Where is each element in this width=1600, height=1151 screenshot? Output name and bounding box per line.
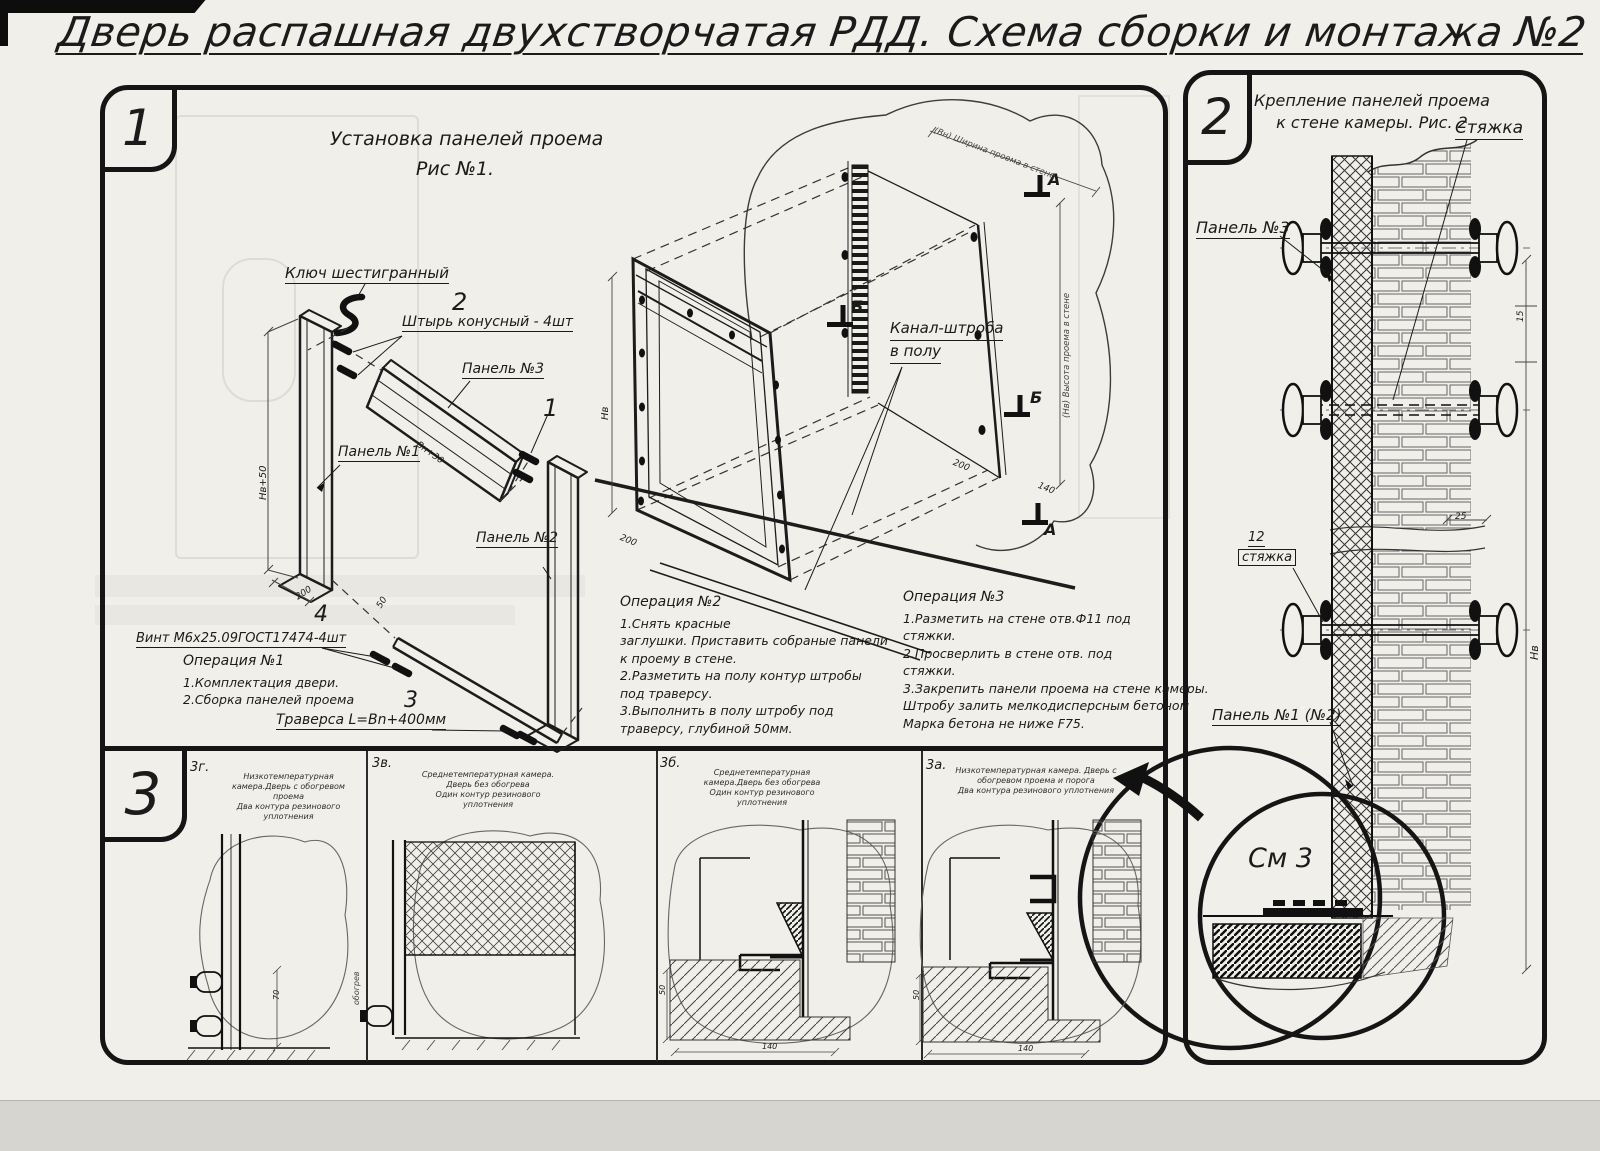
- panel12-label: Панель №1 (№2): [1212, 706, 1341, 726]
- badge-1-number: 1: [122, 99, 154, 157]
- drawing-sheet: Дверь распашная двухстворчатая РДД. Схем…: [0, 0, 1600, 1151]
- marker-letter-a: А: [1044, 520, 1056, 539]
- panel1-label: Панель №1: [338, 444, 420, 462]
- section1-heading-line2: Рис №1.: [330, 154, 580, 184]
- operation2-line: 3.Выполнить в полу штробу под: [620, 702, 888, 720]
- operation3-line: 2.Просверлить в стене отв. под: [903, 645, 1209, 663]
- cell-3v-desc: Среднетемпературная камера. Дверь без об…: [418, 770, 558, 810]
- dim-label: 25: [1455, 512, 1466, 522]
- dim-label: 50: [912, 990, 921, 1000]
- cell-desc-line: Среднетемпературная камера. Дверь без об…: [418, 770, 558, 790]
- cell-desc-line: Среднетемпературная камера.Дверь без обо…: [692, 768, 832, 788]
- panel3-label-s2: Панель №3: [1196, 218, 1290, 239]
- dim-label: 70: [272, 990, 281, 1000]
- detail-3b: [663, 820, 895, 1056]
- hex-key-label: Ключ шестигранный: [285, 264, 449, 284]
- cell-desc-line: Два контура резинового уплотнения: [216, 802, 361, 822]
- channel-label-line2: в полу: [890, 341, 941, 364]
- cell-desc-line: Один контур резинового уплотнения: [418, 790, 558, 810]
- detail-3g: [187, 834, 348, 1060]
- cell-desc-line: Один контур резинового уплотнения: [692, 788, 832, 808]
- panel3-callout-number: 1: [543, 394, 558, 422]
- operation3-line: 3.Закрепить панели проема на стене камер…: [903, 680, 1209, 698]
- dim-label: Нв: [600, 407, 611, 420]
- hex-key-icon: [337, 297, 362, 333]
- traverse-callout-number: 3: [404, 688, 418, 713]
- tie-item-label: стяжка: [1238, 549, 1296, 566]
- operation2-line: под траверсу.: [620, 685, 888, 703]
- operation2-line: заглушки. Приставить собраные панели: [620, 632, 888, 650]
- screw-callout-number: 4: [314, 602, 328, 627]
- operation2-line: траверсу, глубиной 50мм.: [620, 720, 888, 738]
- badge-3: 3: [104, 751, 187, 842]
- threshold-details-drawing: [180, 820, 1165, 1065]
- cell-3a-desc: Низкотемпературная камера. Дверь с обогр…: [946, 766, 1126, 796]
- operation2-title: Операция №2: [620, 594, 888, 612]
- scan-band-bottom: [0, 1100, 1600, 1151]
- operation3-line: стяжки.: [903, 627, 1209, 645]
- sheet-title: Дверь распашная двухстворчатая РДД. Схем…: [55, 8, 1589, 56]
- panel3-label: Панель №3: [462, 361, 544, 379]
- cell-3b-id: 3б.: [660, 756, 680, 771]
- badge-3-number: 3: [125, 760, 162, 828]
- dim-label: 140: [762, 1042, 777, 1051]
- operation3-line: Марка бетона не ниже F75.: [903, 715, 1209, 733]
- screw-label: Винт М6х25.09ГОСТ17474-4шт: [136, 631, 346, 648]
- channel-label-line1: Канал-штроба: [890, 318, 1003, 341]
- operation3-title: Операция №3: [903, 589, 1209, 607]
- detail-3a: [916, 820, 1141, 1058]
- dim-note: обогрев: [352, 971, 361, 1005]
- cell-desc-line: Низкотемпературная камера.Дверь с обогре…: [216, 772, 361, 802]
- section1-heading: Установка панелей проема Рис №1.: [330, 124, 580, 184]
- dim-label: Нв: [1528, 645, 1541, 660]
- tie-item-number: 12: [1248, 530, 1265, 547]
- dim-label: 140: [1018, 1044, 1033, 1053]
- operation1-title: Операция №1: [183, 653, 354, 671]
- dim-label: 50: [658, 985, 667, 995]
- operation1-block: Операция №1 1.Комплектация двери. 2.Сбор…: [183, 653, 354, 709]
- operation3-block: Операция №3 1.Разметить на стене отв.Ф11…: [903, 589, 1209, 732]
- dim-label: 15: [1516, 311, 1526, 322]
- operation2-line: к проему в стене.: [620, 650, 888, 668]
- section2-heading-line1: Крепление панелей проема: [1252, 90, 1492, 112]
- detail-3v: [360, 831, 604, 1050]
- cell-3g-desc: Низкотемпературная камера.Дверь с обогре…: [216, 772, 361, 822]
- operation2-line: 1.Снять красные: [620, 615, 888, 633]
- cell-3a-id: 3а.: [926, 758, 946, 773]
- section1-heading-line1: Установка панелей проема: [330, 124, 580, 154]
- operation1-line: 2.Сборка панелей проема: [183, 691, 354, 709]
- cell-desc-line: Два контура резинового уплотнения: [946, 786, 1126, 796]
- pin-label: Штырь конусный - 4шт: [402, 314, 573, 332]
- operation3-line: стяжки.: [903, 662, 1209, 680]
- pin-callout-number: 2: [452, 288, 467, 316]
- marker-letter-b: Б: [1030, 388, 1042, 407]
- operation3-line: Штробу залить мелкодисперсным бетоном: [903, 697, 1209, 715]
- traverse-label: Траверса L=Bn+400мм: [276, 712, 446, 730]
- operation1-line: 1.Комплектация двери.: [183, 674, 354, 692]
- marker-letter-b: Б: [851, 297, 863, 316]
- cell-3b-desc: Среднетемпературная камера.Дверь без обо…: [692, 768, 832, 808]
- channel-label: Канал-штроба в полу: [890, 318, 1003, 364]
- cell-3g-id: 3г.: [190, 760, 209, 775]
- operation2-line: 2.Разметить на полу контур штробы: [620, 667, 888, 685]
- operation3-line: 1.Разметить на стене отв.Ф11 под: [903, 610, 1209, 628]
- dim-label: (Нв) Высота проема в стене: [1062, 293, 1072, 418]
- tie-label: Стяжка: [1455, 118, 1523, 140]
- cell-desc-line: Низкотемпературная камера. Дверь с обогр…: [946, 766, 1126, 786]
- panel2-label: Панель №2: [476, 530, 558, 548]
- badge-1: 1: [104, 89, 177, 172]
- operation2-block: Операция №2 1.Снять красные заглушки. Пр…: [620, 594, 888, 737]
- scan-mark: [0, 0, 8, 46]
- cell-3v-id: 3в.: [372, 756, 392, 771]
- see-detail-label: См 3: [1248, 843, 1313, 874]
- dim-label: Нв+50: [258, 465, 269, 500]
